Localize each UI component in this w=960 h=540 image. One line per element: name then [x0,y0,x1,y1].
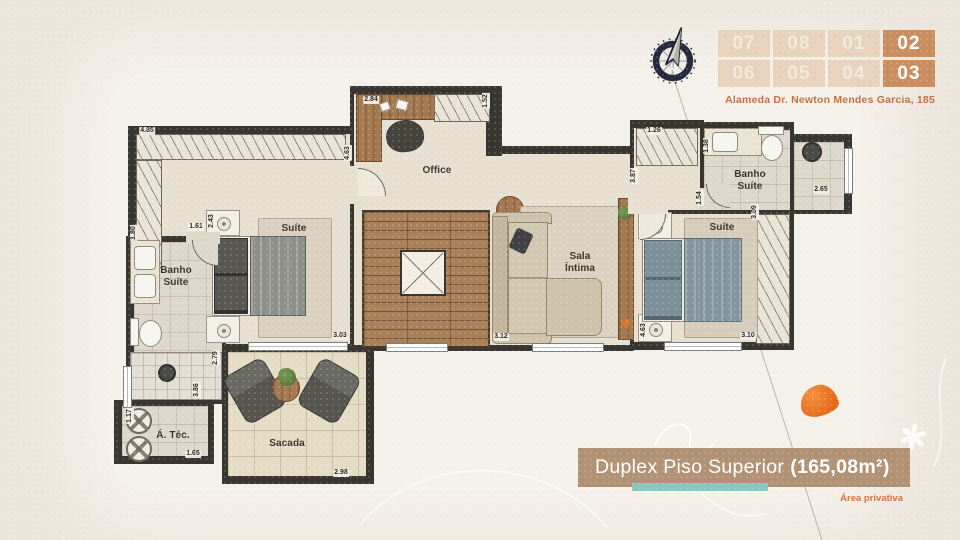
room-label-banho-su-te: Banho Suíte [160,265,192,289]
dimension-label-1-52: 1.52 [482,93,490,109]
dimension-label-4-63: 4.63 [640,322,648,338]
dimension-label-2-43: 2.43 [208,213,216,229]
dimension-label-1-26: 1.26 [646,127,662,135]
room-label-su-te: Suíte [710,222,735,234]
dimension-label-3-10: 3.10 [740,332,756,340]
unit-grid: 0708010206050403 [718,30,935,87]
dimension-label-3-86: 3.86 [193,382,201,398]
dimension-label-3-87: 3.87 [630,168,638,184]
room-label-sacada: Sacada [269,438,305,450]
dimension-label-4-85: 4.85 [139,127,155,135]
address-label: Alameda Dr. Newton Mendes Garcia, 185 [725,94,935,106]
area-privativa-label: Área privativa [840,493,903,504]
dimension-label-1-61: 1.61 [188,223,204,231]
room-label-su-te: Suíte [282,223,307,235]
unit-cell-07[interactable]: 07 [718,30,770,57]
unit-cell-01[interactable]: 01 [828,30,880,57]
dimension-label-3-09: 3.09 [751,204,759,220]
dimension-label-2-79: 2.79 [212,350,220,366]
dimension-label-1-17: 1.17 [126,408,134,424]
dimension-label-4-63: 4.63 [344,145,352,161]
page: N 0708010206050403 Alameda Dr. Newton Me… [0,0,960,540]
dimension-label-1-38: 1.38 [703,138,711,154]
teal-underline [632,483,768,491]
dimension-label-1-65: 1.65 [185,450,201,458]
dimension-label-3-12: 3.12 [493,333,509,341]
dimension-label-3-03: 3.03 [332,332,348,340]
unit-cell-04[interactable]: 04 [828,60,880,87]
dimension-label-2-84: 2.84 [363,96,379,104]
dimension-label-1-54: 1.54 [696,190,704,206]
banner-title: Duplex Piso Superior [595,456,784,479]
svg-text:N: N [670,65,676,74]
dimension-label-2-98: 2.98 [333,469,349,477]
compass-icon: N [644,24,702,91]
banner-area: (165,08m²) [790,456,889,479]
dimension-label-1-80: 1.80 [130,225,138,241]
unit-cell-05[interactable]: 05 [773,60,825,87]
dimension-label-2-65: 2.65 [813,186,829,194]
room-label-sala-ntima: Sala Íntima [565,251,595,275]
unit-cell-03[interactable]: 03 [883,60,935,87]
room-label-office: Office [423,165,452,177]
plan-title-banner: Duplex Piso Superior (165,08m²) [578,448,910,487]
unit-cell-02[interactable]: 02 [883,30,935,57]
unit-cell-06[interactable]: 06 [718,60,770,87]
room-label-t-c: Á. Téc. [156,430,190,442]
room-label-banho-su-te: Banho Suíte [734,169,766,193]
unit-cell-08[interactable]: 08 [773,30,825,57]
